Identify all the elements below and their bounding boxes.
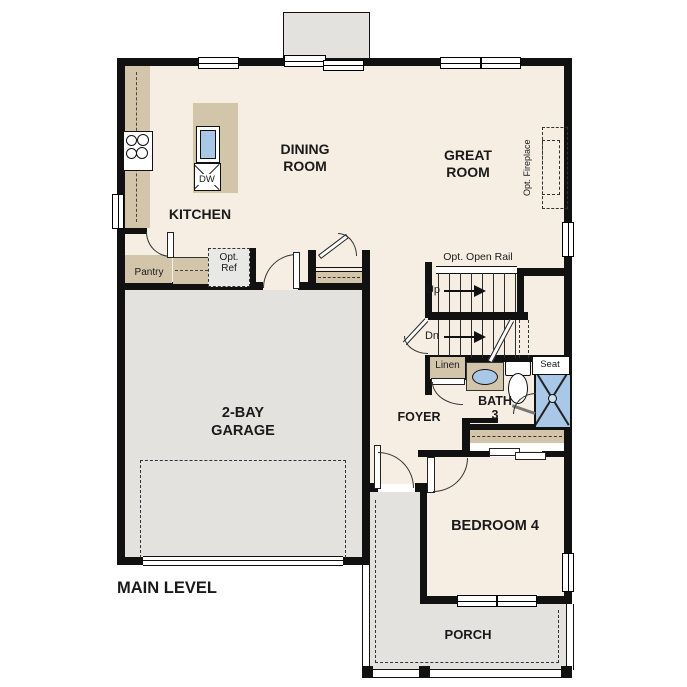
- porch-dash-left: [375, 500, 377, 663]
- burner: [126, 135, 137, 146]
- dw-label: DW: [198, 174, 216, 185]
- fireplace-firebox: [542, 140, 560, 195]
- room-label-garage: 2-BAY GARAGE: [211, 404, 275, 440]
- porch-railing-left: [362, 565, 370, 669]
- window: [497, 595, 537, 607]
- shower: [534, 370, 572, 429]
- window: [562, 222, 574, 257]
- room-label-great: GREAT ROOM: [444, 147, 492, 181]
- dining-line1: DINING: [281, 141, 330, 158]
- garage-entry-door: [293, 252, 300, 289]
- coat-closet-line: [316, 267, 362, 268]
- great-line2: ROOM: [444, 164, 492, 181]
- garage-door: [143, 556, 343, 566]
- fireplace-label: Opt. Fireplace: [522, 125, 534, 211]
- garage-door-line: [143, 560, 343, 561]
- burner: [137, 134, 149, 146]
- room-label-porch: PORCH: [445, 627, 492, 642]
- closet-rod-dash: [472, 436, 562, 438]
- closet-rod-dash: [318, 277, 360, 279]
- wall-bedroom-top-right: [542, 450, 572, 457]
- opt-ref-label-1: Opt.: [209, 252, 249, 263]
- dn-arrow-head: [474, 331, 486, 343]
- shower-drain: [548, 394, 557, 403]
- window: [481, 57, 521, 69]
- wall-coat-closet-left: [308, 250, 316, 290]
- island-sink: [196, 126, 220, 163]
- garage-line1: 2-BAY: [211, 404, 275, 422]
- porch-dash-right: [558, 610, 560, 663]
- closet-bypass-door: [515, 452, 546, 460]
- porch-railing-bottom: [362, 669, 572, 678]
- porch-railing-right: [566, 604, 574, 670]
- wall-bedroom-top-left: [418, 450, 490, 457]
- pantry-label: Pantry: [127, 267, 171, 278]
- dining-line2: ROOM: [281, 158, 330, 175]
- stove: [123, 131, 153, 171]
- floor-plan: Opt. Ref DW Up Dn Opt. Open Rail Linen: [0, 0, 687, 687]
- porch-post: [419, 666, 430, 677]
- seat-label: Seat: [534, 359, 566, 370]
- room-label-bedroom4: BEDROOM 4: [451, 518, 539, 534]
- garage-apron-dashed: [140, 460, 346, 558]
- coat-closet-shelf: [316, 271, 362, 283]
- porch-post: [362, 666, 373, 677]
- level-label: MAIN LEVEL: [117, 579, 217, 598]
- up-label: Up: [414, 284, 440, 296]
- dn-arrow-shaft: [444, 336, 474, 338]
- porch-floor-bottom: [420, 604, 566, 670]
- up-arrow-shaft: [444, 290, 474, 292]
- room-label-bath: BATH 3: [478, 394, 512, 422]
- garage-line2: GARAGE: [211, 422, 275, 440]
- porch-post: [561, 666, 572, 677]
- bath-line1: BATH: [478, 394, 512, 408]
- open-rail-label: Opt. Open Rail: [428, 251, 528, 263]
- window: [112, 194, 124, 229]
- stairs-dash-edge: [519, 320, 529, 358]
- room-label-dining: DINING ROOM: [281, 141, 330, 175]
- window: [198, 57, 239, 69]
- burner: [136, 147, 148, 159]
- bedroom-closet-shelf: [470, 430, 564, 443]
- opt-ref-label-2: Ref: [209, 263, 249, 274]
- dishwasher: DW: [194, 163, 221, 191]
- bath-line2: 3: [478, 408, 512, 422]
- great-line1: GREAT: [444, 147, 492, 164]
- window: [440, 57, 481, 69]
- bath-sink: [472, 369, 498, 385]
- pantry-door: [167, 232, 174, 258]
- wall-greatroom-hall: [517, 268, 572, 276]
- porch-dash-bottom: [375, 662, 559, 664]
- window: [323, 60, 364, 71]
- wall-garage-right: [362, 282, 370, 565]
- room-label-kitchen: KITCHEN: [169, 206, 231, 222]
- window: [562, 553, 574, 592]
- wall-bedroom-left: [420, 490, 427, 604]
- wall-coat-closet-right: [362, 250, 370, 282]
- counter-dash-line: [175, 270, 208, 272]
- wall-frontdoor-right: [415, 483, 427, 492]
- wall-stair-mid: [428, 312, 528, 320]
- sink-basin: [200, 130, 216, 159]
- room-label-foyer: FOYER: [397, 410, 440, 424]
- linen-label: Linen: [431, 360, 464, 371]
- up-arrow-head: [474, 285, 486, 297]
- window: [457, 595, 497, 607]
- kitchen-counter-lower: [173, 257, 210, 284]
- opt-ref: Opt. Ref: [208, 248, 250, 287]
- window: [284, 55, 326, 67]
